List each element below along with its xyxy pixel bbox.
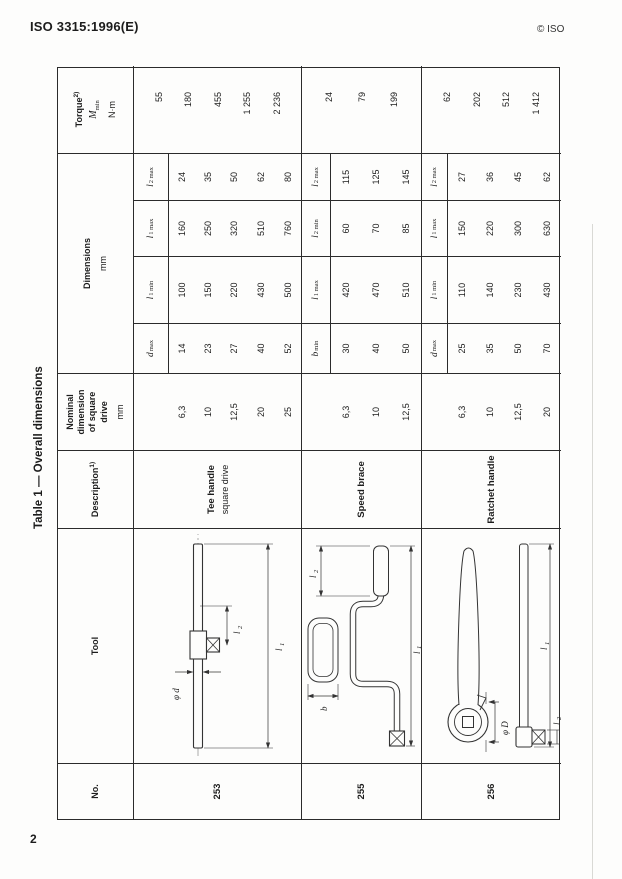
- svg-text:1: 1: [544, 642, 551, 645]
- dim-label-l1min: l1 min: [421, 257, 448, 324]
- page-number: 2: [30, 832, 37, 846]
- dim-value-cell: 150: [448, 201, 476, 257]
- size-cell: 20: [247, 374, 274, 451]
- dim-label-l2max: l2 max: [421, 154, 448, 201]
- svg-text:2: 2: [237, 626, 244, 630]
- description-speed-brace: Speed brace: [301, 451, 421, 529]
- dim-value-cell: 100: [169, 257, 195, 324]
- size-cell: 12,5: [221, 374, 247, 451]
- dim-label-bmin: bmin: [301, 324, 331, 374]
- copyright-iso: © ISO: [537, 24, 564, 35]
- dim-value-cell: 60: [331, 201, 361, 257]
- dim-value-cell: 470: [361, 257, 391, 324]
- size-cell: 10: [361, 374, 391, 451]
- dim-value-cell: 145: [391, 154, 421, 201]
- dim-value-cell: 510: [247, 201, 274, 257]
- dim-value-cell: 50: [391, 324, 421, 374]
- dim-value-cell: 35: [195, 154, 221, 201]
- dim-label-phi-d: φ d: [171, 688, 181, 700]
- dim-value-cell: 150: [195, 257, 221, 324]
- empty-cell: [133, 374, 169, 451]
- size-cell: 6,3: [331, 374, 361, 451]
- col-header-tool: Tool: [58, 529, 133, 764]
- dim-value-cell: 30: [331, 324, 361, 374]
- overall-dimensions-table: No. Tool Description1) Nominal dimension…: [57, 67, 560, 820]
- empty-cell: [421, 374, 448, 451]
- dim-value-cell: 630: [532, 201, 561, 257]
- dim-label-l1max: l1 max: [301, 257, 331, 324]
- col-header-nominal: Nominal dimension of square drive mm: [58, 374, 133, 451]
- dim-value-cell: 110: [448, 257, 476, 324]
- ratchet-handle-drawing: φ D l 1 l 2: [421, 529, 561, 764]
- dim-label-l1: l: [274, 649, 284, 652]
- dim-value-cell: 430: [532, 257, 561, 324]
- dim-value-cell: 85: [391, 201, 421, 257]
- tool-number-255: 255: [301, 764, 421, 819]
- svg-text:2: 2: [556, 717, 561, 721]
- dim-value-cell: 62: [247, 154, 274, 201]
- dim-label-l2: l: [308, 576, 318, 579]
- col-header-torque: Torque2) Mmin N·m: [58, 66, 133, 154]
- torque-values-255: 24 79 199: [301, 66, 421, 154]
- dim-value-cell: 140: [476, 257, 504, 324]
- dim-label-l2max: l2 max: [301, 154, 331, 201]
- description-ratchet-handle: Ratchet handle: [421, 451, 561, 529]
- svg-text:1: 1: [416, 646, 421, 649]
- dim-value-cell: 70: [361, 201, 391, 257]
- dim-label-l1max: l1 max: [421, 201, 448, 257]
- dim-label-l2: l: [552, 723, 561, 726]
- dim-value-cell: 36: [476, 154, 504, 201]
- size-cell: 6,3: [169, 374, 195, 451]
- dim-value-cell: 35: [476, 324, 504, 374]
- svg-text:1: 1: [279, 643, 286, 646]
- svg-text:2: 2: [313, 570, 320, 574]
- dim-label-l1: l: [539, 648, 549, 651]
- document-id: ISO 3315:1996(E): [30, 19, 139, 34]
- dim-value-cell: 220: [221, 257, 247, 324]
- size-cell: 6,3: [448, 374, 476, 451]
- dim-value-cell: 40: [361, 324, 391, 374]
- tee-handle-drawing: φ d l 2 l 1: [133, 529, 301, 764]
- dim-value-cell: 320: [221, 201, 247, 257]
- size-cell: 12,5: [391, 374, 421, 451]
- dim-label-dmax: dmax: [421, 324, 448, 374]
- dim-label-l1: l: [412, 652, 421, 655]
- dim-value-cell: 24: [169, 154, 195, 201]
- speed-brace-drawing: b l 2 l 1: [301, 529, 421, 764]
- col-header-dimensions: Dimensions mm: [58, 154, 133, 374]
- dim-value-cell: 50: [221, 154, 247, 201]
- dim-value-cell: 25: [448, 324, 476, 374]
- dim-value-cell: 230: [504, 257, 532, 324]
- dim-label-dmax: dmax: [133, 324, 169, 374]
- dim-label-l1min: l1 min: [133, 257, 169, 324]
- dim-label-l2max: l2 max: [133, 154, 169, 201]
- dim-value-cell: 300: [504, 201, 532, 257]
- torque-values-256: 62 202 512 1 412: [421, 66, 561, 154]
- dim-value-cell: 45: [504, 154, 532, 201]
- dim-value-cell: 125: [361, 154, 391, 201]
- dim-value-cell: 40: [247, 324, 274, 374]
- dim-label-l1max: l1 max: [133, 201, 169, 257]
- dim-value-cell: 220: [476, 201, 504, 257]
- dim-value-cell: 14: [169, 324, 195, 374]
- dim-label-phi-D: φ D: [500, 721, 510, 735]
- dim-value-cell: 420: [331, 257, 361, 324]
- dim-value-cell: 250: [195, 201, 221, 257]
- dim-value-cell: 27: [448, 154, 476, 201]
- dim-value-cell: 160: [169, 201, 195, 257]
- document-page: { "page": { "header_left": "ISO 3315:199…: [0, 0, 622, 879]
- size-cell: 10: [195, 374, 221, 451]
- dim-label-b: b: [319, 707, 329, 712]
- dim-value-cell: 70: [532, 324, 561, 374]
- table-title: Table 1 — Overall dimensions: [33, 329, 45, 529]
- dim-value-cell: 430: [247, 257, 274, 324]
- col-header-no: No.: [58, 764, 133, 819]
- dim-value-cell: 62: [532, 154, 561, 201]
- torque-values-253: 55 180 455 1 255 2 236: [133, 66, 301, 154]
- dim-label-l2: l: [232, 632, 242, 635]
- dim-value-cell: 115: [331, 154, 361, 201]
- dim-value-cell: 27: [221, 324, 247, 374]
- scan-edge-line: [592, 224, 593, 879]
- empty-cell: [301, 374, 331, 451]
- size-cell: 10: [476, 374, 504, 451]
- dim-value-cell: 50: [504, 324, 532, 374]
- dim-label-l2min: l2 min: [301, 201, 331, 257]
- dim-value-cell: 510: [391, 257, 421, 324]
- description-tee-handle: Tee handle square drive: [133, 451, 301, 529]
- tool-number-253: 253: [133, 764, 301, 819]
- dim-value-cell: 80: [274, 154, 301, 201]
- dim-value-cell: 760: [274, 201, 301, 257]
- size-cell: 12,5: [504, 374, 532, 451]
- dim-value-cell: 52: [274, 324, 301, 374]
- rotated-table-wrapper: No. Tool Description1) Nominal dimension…: [57, 67, 560, 820]
- tool-number-256: 256: [421, 764, 561, 819]
- size-cell: 25: [274, 374, 301, 451]
- size-cell: 20: [532, 374, 561, 451]
- col-header-description: Description1): [58, 451, 133, 529]
- dim-value-cell: 23: [195, 324, 221, 374]
- dim-value-cell: 500: [274, 257, 301, 324]
